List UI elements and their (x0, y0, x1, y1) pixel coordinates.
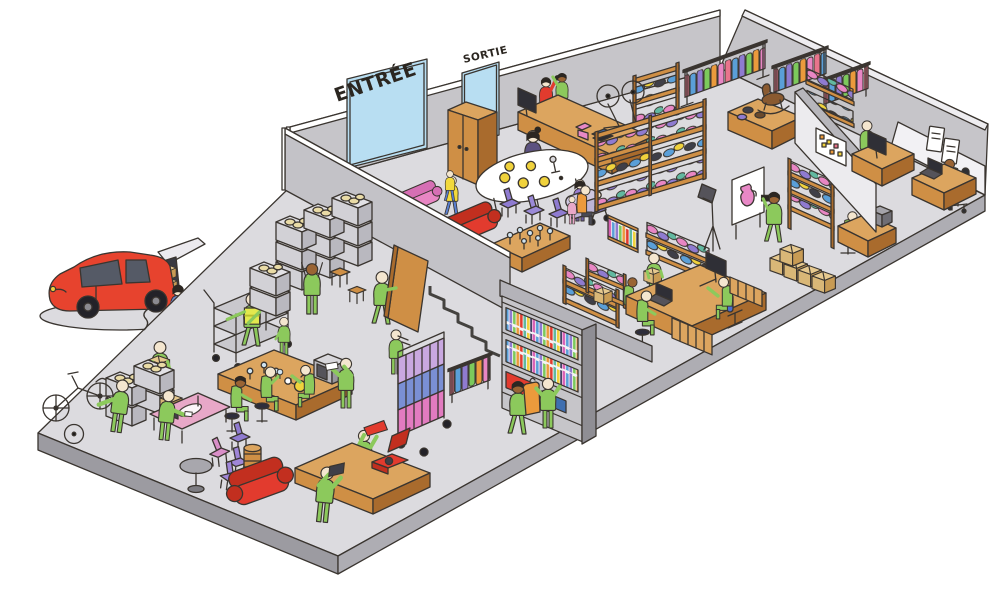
orange-garment (523, 378, 540, 415)
reuse-store-isometric-illustration: ENTRÉE SORTIE (0, 0, 1000, 592)
exit-sign: SORTIE (462, 44, 509, 66)
